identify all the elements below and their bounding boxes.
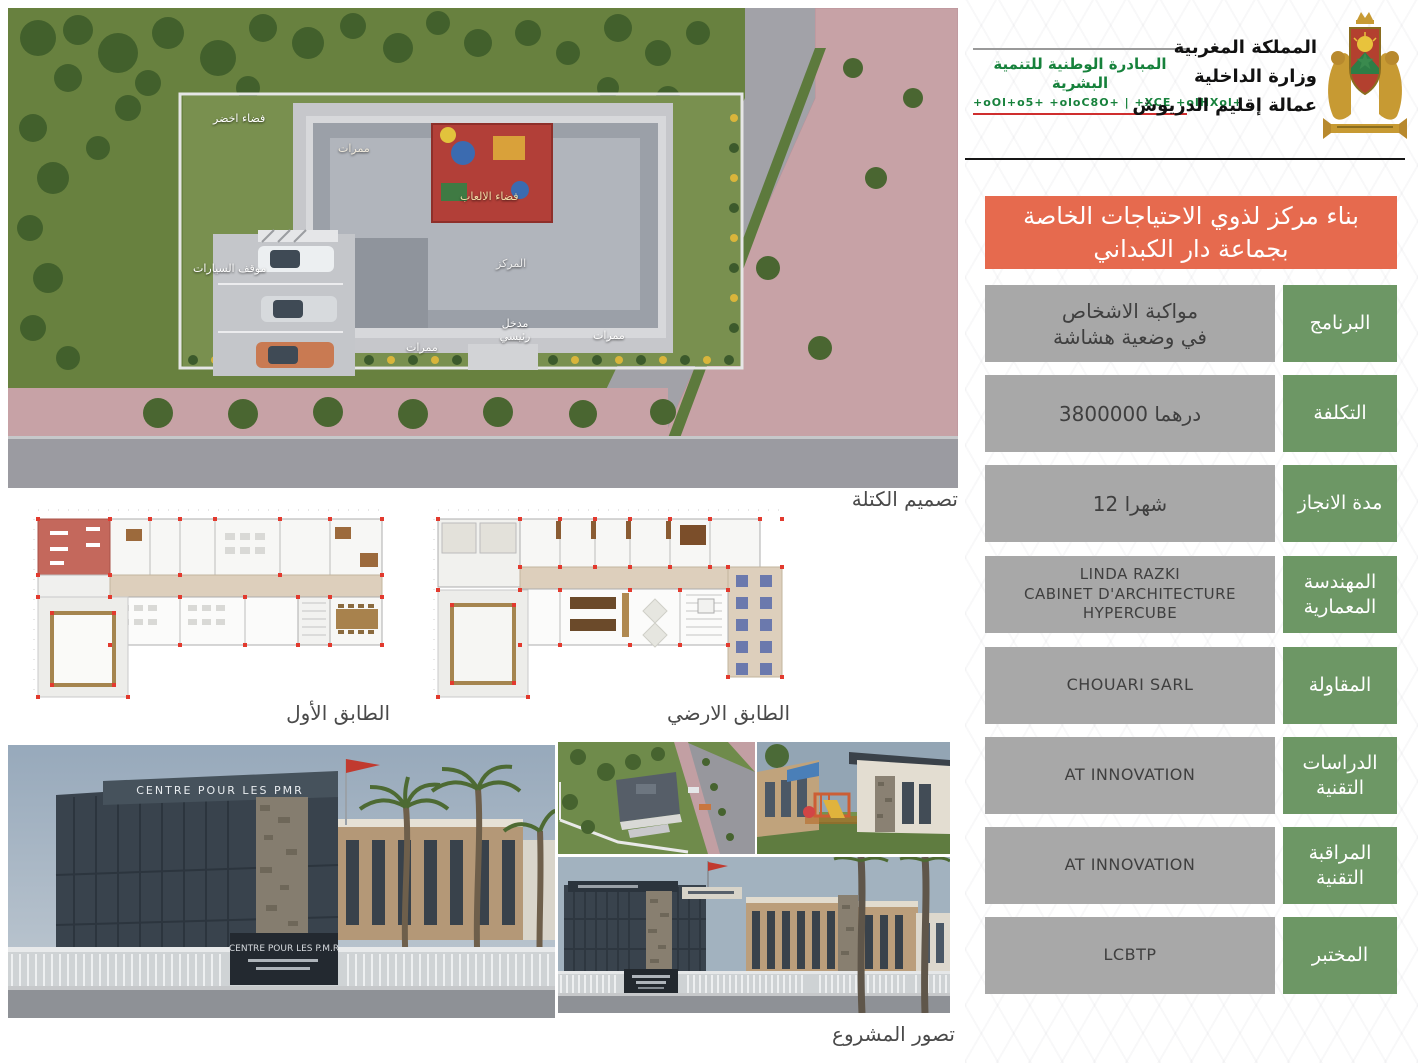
site-label-parking: موقف السيارات — [193, 263, 266, 276]
program-value: مواكبة الاشخاص في وضعية هشاشة — [985, 285, 1275, 362]
info-row-program: مواكبة الاشخاص في وضعية هشاشة البرنامج — [985, 285, 1397, 362]
program-label: البرنامج — [1283, 285, 1397, 362]
duration-value: 12 شهرا — [985, 465, 1275, 542]
caption-ground-floor: الطابق الارضي — [600, 701, 790, 725]
duration-label: مدة الانجاز — [1283, 465, 1397, 542]
architect-label: المهندسة المعمارية — [1283, 556, 1397, 633]
building-sign-text: CENTRE POUR LES PMR — [136, 784, 303, 797]
info-row-cost: 3800000 درهما التكلفة — [985, 375, 1397, 452]
info-row-architect: LINDA RAZKI CABINET D'ARCHITECTURE HYPER… — [985, 556, 1397, 633]
moroccan-coat-of-arms-icon — [1321, 6, 1409, 156]
info-row-technical-studies: AT INNOVATION الدراسات التقنية — [985, 737, 1397, 814]
site-label-green-space: فضاء اخضر — [213, 113, 265, 126]
contractor-value: CHOUARI SARL — [985, 647, 1275, 724]
first-floor-plan — [30, 505, 390, 701]
project-title-line2: بجماعة دار الكبداني — [985, 233, 1397, 265]
courtyard-render-image — [757, 742, 950, 854]
ministry-heading: المملكة المغربية وزارة الداخلية عمالة إق… — [1083, 34, 1317, 120]
main-building-render: CENTRE POUR LES PMR — [8, 745, 555, 1018]
site-label-walkways-3: ممرات — [406, 342, 438, 355]
site-label-main-entrance: مدخل رئيسي — [490, 318, 540, 343]
technical-control-value: AT INNOVATION — [985, 827, 1275, 904]
ministry-line-province: عمالة إقليم الدريوش — [1083, 92, 1317, 121]
site-label-walkways-2: ممرات — [593, 330, 625, 343]
project-title-banner: بناء مركز لذوي الاحتياجات الخاصة بجماعة … — [985, 196, 1397, 269]
technical-control-label: المراقبة التقنية — [1283, 827, 1397, 904]
site-label-playground: فضاء الالعاب — [460, 191, 519, 204]
presentation-board: فضاء اخضر ممرات فضاء الالعاب المركز موقف… — [0, 0, 1418, 1063]
info-row-contractor: CHOUARI SARL المقاولة — [985, 647, 1397, 724]
info-row-technical-control: AT INNOVATION المراقبة التقنية — [985, 827, 1397, 904]
caption-first-floor: الطابق الأول — [200, 701, 390, 725]
site-plan-image — [8, 8, 958, 488]
header-divider — [965, 158, 1405, 160]
contractor-label: المقاولة — [1283, 647, 1397, 724]
street-elevation-render-image — [558, 857, 950, 1013]
laboratory-label: المختبر — [1283, 917, 1397, 994]
project-title-line1: بناء مركز لذوي الاحتياجات الخاصة — [985, 200, 1397, 232]
info-row-laboratory: LCBTP المختبر — [985, 917, 1397, 994]
courtyard-render — [757, 742, 950, 854]
architect-value: LINDA RAZKI CABINET D'ARCHITECTURE HYPER… — [985, 556, 1275, 633]
site-label-walkways-1: ممرات — [338, 143, 370, 156]
cost-value: 3800000 درهما — [985, 375, 1275, 452]
gate-sign-text: CENTRE POUR LES P.M.R — [229, 944, 339, 954]
street-elevation-render — [558, 857, 950, 1013]
ground-floor-plan — [430, 505, 790, 701]
ground-floor-plan-image — [430, 505, 790, 701]
ministry-line-kingdom: المملكة المغربية — [1083, 34, 1317, 63]
cost-label: التكلفة — [1283, 375, 1397, 452]
main-building-render-image: CENTRE POUR LES PMR — [8, 745, 555, 1018]
caption-project-visualization: تصور المشروع — [758, 1022, 955, 1046]
site-label-center: المركز — [496, 258, 526, 271]
ministry-line-interior: وزارة الداخلية — [1083, 63, 1317, 92]
first-floor-plan-image — [30, 505, 390, 701]
technical-studies-label: الدراسات التقنية — [1283, 737, 1397, 814]
aerial-corner-render-image — [558, 742, 755, 854]
site-plan-render: فضاء اخضر ممرات فضاء الالعاب المركز موقف… — [8, 8, 958, 488]
info-row-duration: 12 شهرا مدة الانجاز — [985, 465, 1397, 542]
laboratory-value: LCBTP — [985, 917, 1275, 994]
info-panel: المبادرة الوطنية للتنمية البشرية +oOl+o5… — [965, 0, 1418, 1063]
technical-studies-value: AT INNOVATION — [985, 737, 1275, 814]
aerial-corner-render — [558, 742, 755, 854]
